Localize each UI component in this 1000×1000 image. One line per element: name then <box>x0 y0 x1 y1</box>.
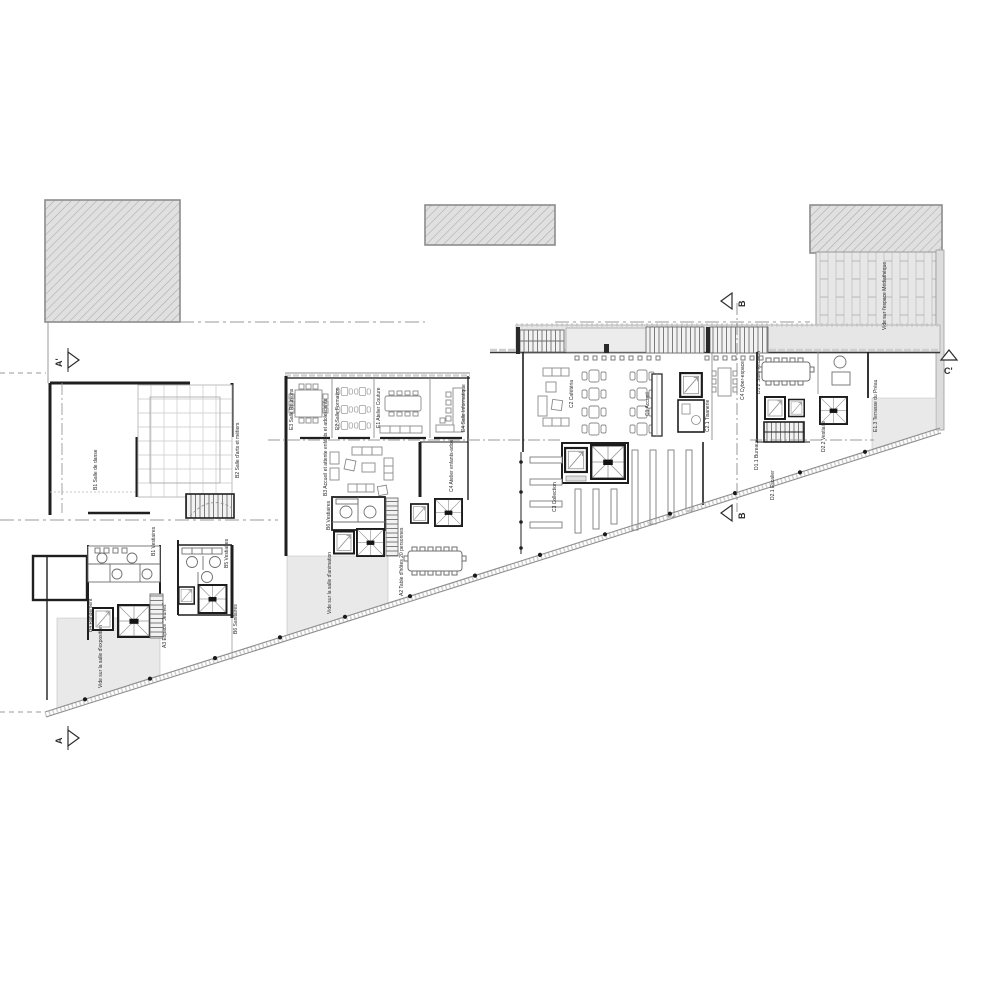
floor-plan-sheet: A' A B B C' B1 Salle de danse B2 Salle d… <box>0 0 1000 1000</box>
section-marker-b-bottom: B <box>721 505 747 521</box>
cafeteria-tables <box>582 370 654 435</box>
entrance-platform <box>566 328 658 353</box>
label-sanitaires: B6 Sanitaires <box>233 604 239 634</box>
accueil-desk <box>652 374 662 436</box>
label-tisanerie: C2.1 Tisanerie <box>705 400 711 432</box>
existing-building-hatched-west <box>45 200 180 322</box>
lounge-furniture <box>330 447 393 496</box>
label-atelier-couture: E1 Atelier Couture <box>376 387 382 428</box>
label-vide-animation: Vide sur la salle d'animation <box>327 552 333 614</box>
terrace-long-table <box>404 547 466 575</box>
wing3-elevator <box>334 532 354 554</box>
collection-elevator <box>565 448 587 472</box>
section-marker-a-prime: A' <box>54 348 79 372</box>
wing3-north-wall <box>285 373 470 378</box>
label-vide-exposition: Vide sur la salle d'exposition <box>98 625 104 688</box>
wing3-wc-block <box>332 497 385 530</box>
wing2-wc-block <box>182 548 222 584</box>
label-salle-formation: E2 Salle Formation <box>335 387 341 430</box>
east-elevator-1 <box>765 397 785 419</box>
entrance-door-1 <box>604 344 609 353</box>
formation-room-seats <box>337 388 371 430</box>
accueil-elevator <box>680 373 702 397</box>
informatique-room-furniture <box>436 388 463 432</box>
collection-spiral-stair <box>591 445 625 479</box>
wing3-straight-stair <box>386 498 398 556</box>
label-escalier-d: D2.1 Escalier <box>770 470 776 500</box>
east-spiral-stair <box>820 397 847 424</box>
wing1-stair-room <box>186 494 234 518</box>
east-wc <box>832 356 850 385</box>
toilet-icon <box>127 553 137 563</box>
label-vestiaires-1: B1 Vestiaires <box>151 526 157 556</box>
label-salle-reunions: E3 Salle Réunions <box>289 388 295 430</box>
void-over-animation-terrace <box>287 556 388 635</box>
entrance-stair-west <box>516 327 564 354</box>
label-rangement: B4 Rangement <box>88 598 94 632</box>
tiled-hall-floor <box>138 385 232 497</box>
existing-building-hatched-middle <box>425 205 555 245</box>
east-elevator-2 <box>789 400 804 417</box>
label-salle-danse: B1 Salle de danse <box>93 449 99 490</box>
dance-room-gridlines <box>50 383 135 513</box>
east-core <box>764 397 847 442</box>
label-collection: C3 Collection <box>552 482 558 512</box>
label-vide-mediatheque: Vide sur l'espace Médiathèque <box>882 262 888 330</box>
atelier-elevator <box>411 504 428 523</box>
wing2-elevator <box>179 587 194 604</box>
label-vestiaires-3: B6 Vestiaires <box>326 500 332 530</box>
toilet-icon <box>187 557 198 568</box>
label-terrasse-preau: E1.3 Terrasse du Préau <box>873 379 879 432</box>
marker-label-a: A <box>54 737 64 744</box>
wing3-spiral-stair <box>357 529 384 556</box>
marker-label-b-top: B <box>737 300 747 307</box>
toilet-icon <box>834 356 846 368</box>
atelier-spiral-stair <box>435 499 462 526</box>
marker-label-c-prime: C' <box>944 366 953 376</box>
label-atelier-enfants: C4 Atelier enfants-ados <box>449 440 455 492</box>
label-salle-reunion-d: D1.2 Salle Réunion <box>756 351 762 394</box>
annex-wc-block <box>88 546 160 582</box>
label-terrasse-table: A2 Table d'hôtes 20 personnes <box>399 527 405 596</box>
toilet-icon <box>112 569 122 579</box>
toilet-icon <box>210 557 221 568</box>
label-bureau: D1.1 Bureaux <box>754 439 760 470</box>
marker-label-b-bottom: B <box>737 512 747 519</box>
label-espace-jeunes: A3 Espace "Jeunes" <box>162 603 168 648</box>
toilet-icon <box>340 506 352 518</box>
label-vestiaires-2: B5 Vestiaires <box>224 538 230 568</box>
label-salle-arts: B2 Salle d'arts et métiers <box>235 422 241 478</box>
couture-room-furniture <box>380 391 422 433</box>
floor-plan-drawing: A' A B B C' B1 Salle de danse B2 Salle d… <box>0 0 1000 1000</box>
section-marker-a: A <box>54 726 79 750</box>
reunion-table-east <box>758 358 814 385</box>
bollard-row <box>575 356 763 360</box>
annex-spiral-stair <box>118 605 150 637</box>
label-accueil-attente: B3 Accueil et attente enfants et adolesc… <box>323 398 329 496</box>
toilet-icon <box>364 506 376 518</box>
accueil-core <box>678 373 704 432</box>
entrance-stair-east-1 <box>646 327 704 353</box>
toilet-icon <box>97 553 107 563</box>
marker-label-a-prime: A' <box>54 358 64 367</box>
label-accueil: C1 Accueil <box>645 392 651 416</box>
wing2-spiral-stair <box>199 585 227 613</box>
section-marker-b-top: B <box>721 293 747 309</box>
label-cafeteria: C2 Cafétéria <box>569 380 575 408</box>
cyber-table <box>712 368 737 396</box>
collection-core <box>562 443 628 483</box>
toilet-icon <box>142 569 152 579</box>
cafeteria-banquettes <box>538 368 569 426</box>
label-salle-informatique: E4 Salle Informatique <box>461 384 467 432</box>
label-vestiaire-d: D2.2 Vestiaire <box>821 421 827 452</box>
label-cyber: C4 Cyber-espace <box>740 361 746 400</box>
toilet-icon <box>202 572 213 583</box>
existing-building-hatched-east <box>810 205 942 253</box>
